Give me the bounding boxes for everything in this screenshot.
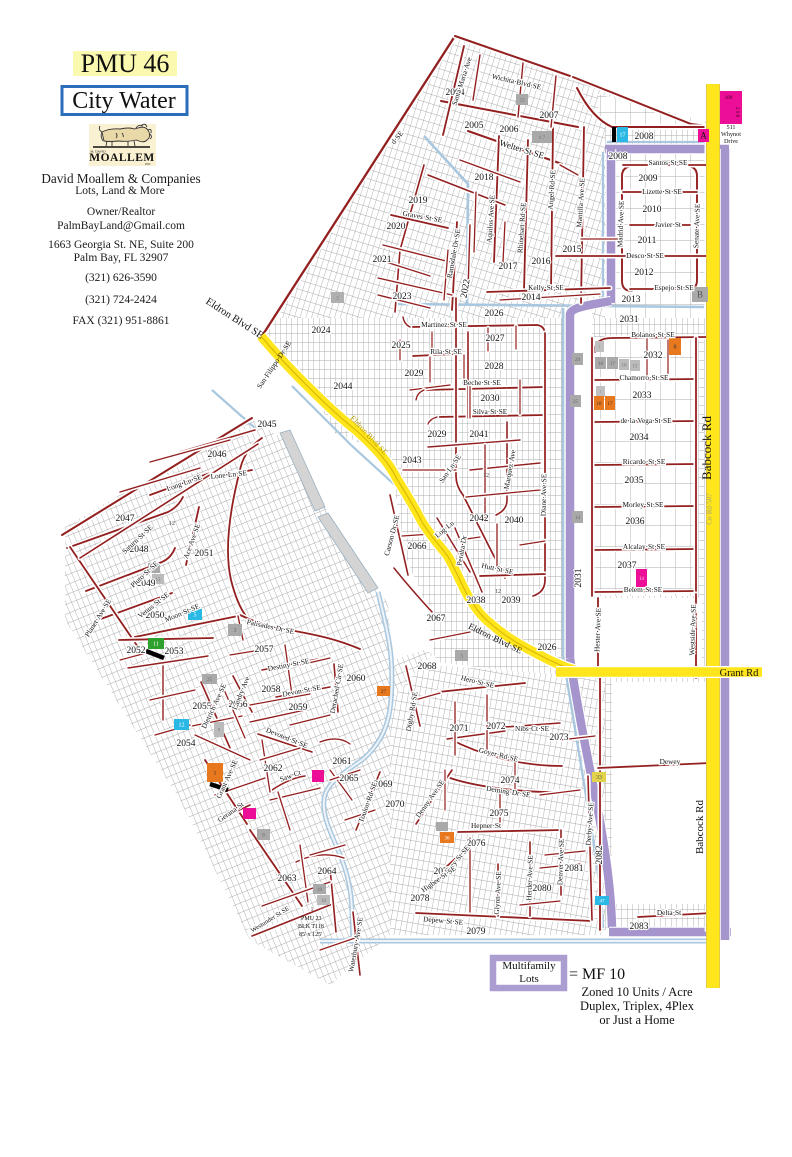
svg-text:Senate·Ave·SE: Senate·Ave·SE [691, 203, 702, 248]
svg-text:2044: 2044 [334, 382, 353, 392]
svg-text:5: 5 [194, 613, 197, 619]
svg-text:33: 33 [596, 775, 602, 781]
svg-text:PMU 46: PMU 46 [81, 49, 170, 78]
svg-text:= MF 10: = MF 10 [569, 966, 625, 983]
svg-text:Lizette·St·SE: Lizette·St·SE [642, 187, 682, 196]
svg-text:City Water: City Water [72, 88, 176, 114]
svg-text:Dewey: Dewey [660, 757, 681, 766]
svg-text:Palm Bay, FL 32907: Palm Bay, FL 32907 [74, 252, 169, 264]
svg-text:Kelly·St·SE: Kelly·St·SE [528, 283, 564, 292]
svg-text:(321) 626-3590: (321) 626-3590 [85, 272, 157, 284]
svg-text:2047: 2047 [116, 514, 135, 524]
svg-text:2080: 2080 [533, 884, 552, 894]
svg-text:PalmBayLand@Gmail.com: PalmBayLand@Gmail.com [57, 220, 185, 232]
svg-text:2017: 2017 [499, 262, 518, 272]
svg-text:Desco·St·SE: Desco·St·SE [626, 251, 664, 260]
svg-text:2066: 2066 [408, 542, 427, 552]
svg-text:2008: 2008 [635, 132, 654, 142]
svg-text:2062: 2062 [264, 764, 283, 774]
svg-text:Westside·Ave·SE: Westside·Ave·SE [687, 604, 698, 656]
svg-text:1663 Georgia St. NE, Suite 200: 1663 Georgia St. NE, Suite 200 [48, 239, 194, 251]
svg-text:Lots: Lots [519, 973, 539, 985]
svg-text:2043: 2043 [403, 456, 422, 466]
svg-text:2034: 2034 [630, 433, 649, 443]
svg-text:18: 18 [321, 899, 327, 904]
svg-text:Javier·St: Javier·St [655, 220, 681, 229]
svg-text:2071: 2071 [450, 724, 469, 734]
svg-text:Multifamily: Multifamily [502, 960, 556, 972]
svg-text:18: 18 [598, 362, 604, 367]
svg-text:17: 17 [610, 362, 616, 367]
svg-text:Belem·St·SE: Belem·St·SE [624, 585, 663, 594]
svg-text:2026: 2026 [485, 309, 504, 319]
svg-text:Herder·Ave·SE: Herder·Ave·SE [524, 855, 535, 901]
svg-text:8: 8 [674, 345, 677, 351]
svg-text:Hepner·St: Hepner·St [471, 821, 501, 830]
svg-text:85' x 125': 85' x 125' [299, 932, 322, 938]
svg-text:25: 25 [573, 400, 579, 405]
svg-text:2068: 2068 [418, 662, 437, 672]
svg-text:2078: 2078 [411, 894, 430, 904]
svg-text:2059: 2059 [289, 703, 308, 713]
svg-text:2038: 2038 [467, 596, 486, 606]
svg-text:2054: 2054 [177, 739, 196, 749]
svg-text:2007: 2007 [540, 111, 559, 121]
svg-text:Owner/Realtor: Owner/Realtor [87, 206, 156, 218]
svg-text:FAX (321) 951-8861: FAX (321) 951-8861 [73, 315, 170, 327]
svg-text:12: 12 [483, 473, 489, 479]
svg-text:Alcalay·St·SE: Alcalay·St·SE [623, 542, 666, 551]
svg-text:2023: 2023 [393, 292, 412, 302]
svg-text:2039: 2039 [502, 596, 521, 606]
svg-text:2037: 2037 [618, 561, 637, 571]
svg-text:1: 1 [311, 907, 314, 913]
svg-text:2005: 2005 [465, 121, 484, 131]
svg-text:15: 15 [633, 364, 639, 369]
svg-text:Lots, Land & More: Lots, Land & More [75, 185, 164, 197]
svg-text:2042: 2042 [470, 514, 489, 524]
svg-text:Co·Rd·507: Co·Rd·507 [706, 493, 714, 525]
svg-text:2020: 2020 [387, 222, 406, 232]
svg-text:Whynot: Whynot [721, 131, 741, 138]
svg-text:Denver·Ave·SE: Denver·Ave·SE [555, 838, 566, 885]
svg-text:Ricardo·St·SE: Ricardo·St·SE [623, 457, 666, 466]
svg-text:2057: 2057 [255, 645, 274, 655]
svg-text:2031: 2031 [574, 568, 584, 587]
svg-text:27: 27 [381, 690, 387, 695]
svg-text:11: 11 [153, 642, 159, 648]
svg-text:Martinez·St·SE: Martinez·St·SE [421, 320, 467, 329]
svg-text:18: 18 [597, 402, 603, 407]
svg-text:(321) 724-2424: (321) 724-2424 [85, 294, 157, 306]
svg-text:2016: 2016 [532, 257, 551, 267]
svg-text:12: 12 [179, 723, 185, 729]
svg-text:Silva·St·SE: Silva·St·SE [473, 407, 508, 416]
svg-text:2073: 2073 [550, 733, 569, 743]
svg-text:25: 25 [207, 678, 213, 683]
svg-text:12: 12 [495, 589, 501, 595]
svg-text:3: 3 [234, 628, 237, 634]
svg-text:Nibs·Ct·SE: Nibs·Ct·SE [515, 724, 550, 733]
svg-text:or Just a Home: or Just a Home [599, 1013, 675, 1027]
svg-text:2035: 2035 [625, 476, 644, 486]
svg-text:23: 23 [520, 98, 526, 103]
svg-text:INC: INC [145, 162, 151, 166]
svg-text:2027: 2027 [486, 334, 505, 344]
svg-text:BLK T118: BLK T118 [298, 924, 324, 930]
svg-text:2082: 2082 [595, 845, 605, 864]
svg-text:2028: 2028 [485, 362, 504, 372]
svg-text:2075: 2075 [490, 809, 509, 819]
svg-text:2021: 2021 [373, 255, 392, 265]
svg-text:B: B [697, 290, 703, 300]
svg-text:2026: 2026 [538, 643, 557, 653]
svg-text:2063: 2063 [278, 874, 297, 884]
svg-text:36: 36 [445, 836, 451, 841]
svg-text:2033: 2033 [633, 391, 652, 401]
svg-text:180': 180' [725, 96, 734, 101]
svg-text:2 0 8: 2 0 8 [734, 107, 739, 118]
svg-text:14: 14 [639, 577, 645, 582]
svg-text:2064: 2064 [318, 867, 337, 877]
svg-text:Hester·Ave·SE: Hester·Ave·SE [592, 607, 603, 652]
svg-text:2045: 2045 [258, 420, 277, 430]
svg-text:511: 511 [726, 124, 735, 131]
svg-text:Drive: Drive [724, 138, 738, 145]
svg-text:Grant Rd: Grant Rd [720, 668, 760, 679]
svg-text:2030: 2030 [481, 394, 500, 404]
svg-text:6 7: 6 7 [539, 136, 546, 141]
svg-text:2019: 2019 [409, 196, 428, 206]
svg-text:Rila·St·SE: Rila·St·SE [430, 347, 462, 356]
svg-text:PMU 23: PMU 23 [301, 916, 322, 922]
svg-text:2083: 2083 [630, 922, 649, 932]
svg-text:2046: 2046 [208, 450, 227, 460]
svg-text:2081: 2081 [565, 864, 584, 874]
svg-text:2013: 2013 [622, 295, 641, 305]
svg-text:Madrid·Ave·SE: Madrid·Ave·SE [615, 200, 626, 247]
svg-text:2008: 2008 [609, 152, 628, 162]
svg-text:Zoned 10 Units / Acre: Zoned 10 Units / Acre [581, 985, 693, 999]
svg-text:2029: 2029 [428, 430, 447, 440]
svg-text:13: 13 [156, 578, 162, 583]
svg-text:2051: 2051 [195, 549, 214, 559]
svg-text:A: A [700, 131, 707, 141]
svg-text:Morley·St·SE: Morley·St·SE [623, 500, 664, 509]
svg-text:Santos·St·SE: Santos·St·SE [649, 158, 688, 167]
svg-text:2052: 2052 [127, 646, 146, 656]
svg-text:47: 47 [600, 899, 606, 904]
svg-text:2067: 2067 [427, 614, 446, 624]
svg-text:1: 1 [599, 389, 601, 394]
svg-text:de·la·Vega·St·SE: de·la·Vega·St·SE [620, 416, 672, 425]
svg-text:Babcock Rd: Babcock Rd [694, 799, 706, 854]
svg-text:1: 1 [598, 344, 600, 349]
svg-text:Bolanos·St·SE: Bolanos·St·SE [631, 330, 675, 339]
svg-text:17: 17 [620, 133, 626, 139]
svg-text:14: 14 [575, 516, 581, 521]
svg-text:2012: 2012 [635, 268, 654, 278]
svg-text:2072: 2072 [487, 722, 506, 732]
svg-text:2060: 2060 [347, 674, 366, 684]
svg-text:2024: 2024 [312, 326, 331, 336]
svg-text:2070: 2070 [386, 800, 405, 810]
svg-text:Espejo·St·SE: Espejo·St·SE [654, 283, 694, 292]
svg-text:16: 16 [622, 363, 628, 368]
svg-text:2040: 2040 [505, 516, 524, 526]
svg-text:Babcock Rd: Babcock Rd [699, 416, 714, 480]
svg-text:Delta·St: Delta·St [657, 908, 681, 917]
svg-text:2065: 2065 [340, 774, 359, 784]
svg-text:2010: 2010 [643, 205, 662, 215]
svg-text:Beche·St·SE: Beche·St·SE [463, 378, 501, 387]
svg-text:Chamorro·St·SE: Chamorro·St·SE [619, 373, 669, 382]
svg-text:2009: 2009 [639, 174, 658, 184]
svg-text:2015: 2015 [563, 245, 582, 255]
svg-text:2025: 2025 [392, 341, 411, 351]
svg-text:2029: 2029 [405, 369, 424, 379]
svg-text:19: 19 [317, 888, 323, 893]
svg-text:2074: 2074 [501, 776, 520, 786]
svg-text:Diane·Ave·SE: Diane·Ave·SE [539, 473, 549, 516]
svg-text:17: 17 [608, 402, 614, 407]
svg-text:2031: 2031 [620, 315, 639, 325]
svg-text:David Moallem & Companies: David Moallem & Companies [41, 171, 200, 186]
svg-text:2011: 2011 [638, 236, 657, 246]
svg-text:Duplex, Triplex, 4Plex: Duplex, Triplex, 4Plex [580, 999, 695, 1013]
svg-text:2058: 2058 [262, 685, 281, 695]
svg-text:2018: 2018 [475, 173, 494, 183]
svg-text:2061: 2061 [333, 757, 352, 767]
svg-text:2041: 2041 [470, 430, 489, 440]
svg-text:12: 12 [169, 521, 175, 527]
svg-text:29: 29 [575, 358, 581, 363]
svg-text:2053: 2053 [165, 647, 184, 657]
svg-text:2079: 2079 [467, 927, 486, 937]
svg-text:2032: 2032 [644, 351, 663, 361]
svg-text:2014: 2014 [522, 293, 541, 303]
svg-text:2036: 2036 [626, 517, 645, 527]
svg-text:2006: 2006 [500, 125, 519, 135]
